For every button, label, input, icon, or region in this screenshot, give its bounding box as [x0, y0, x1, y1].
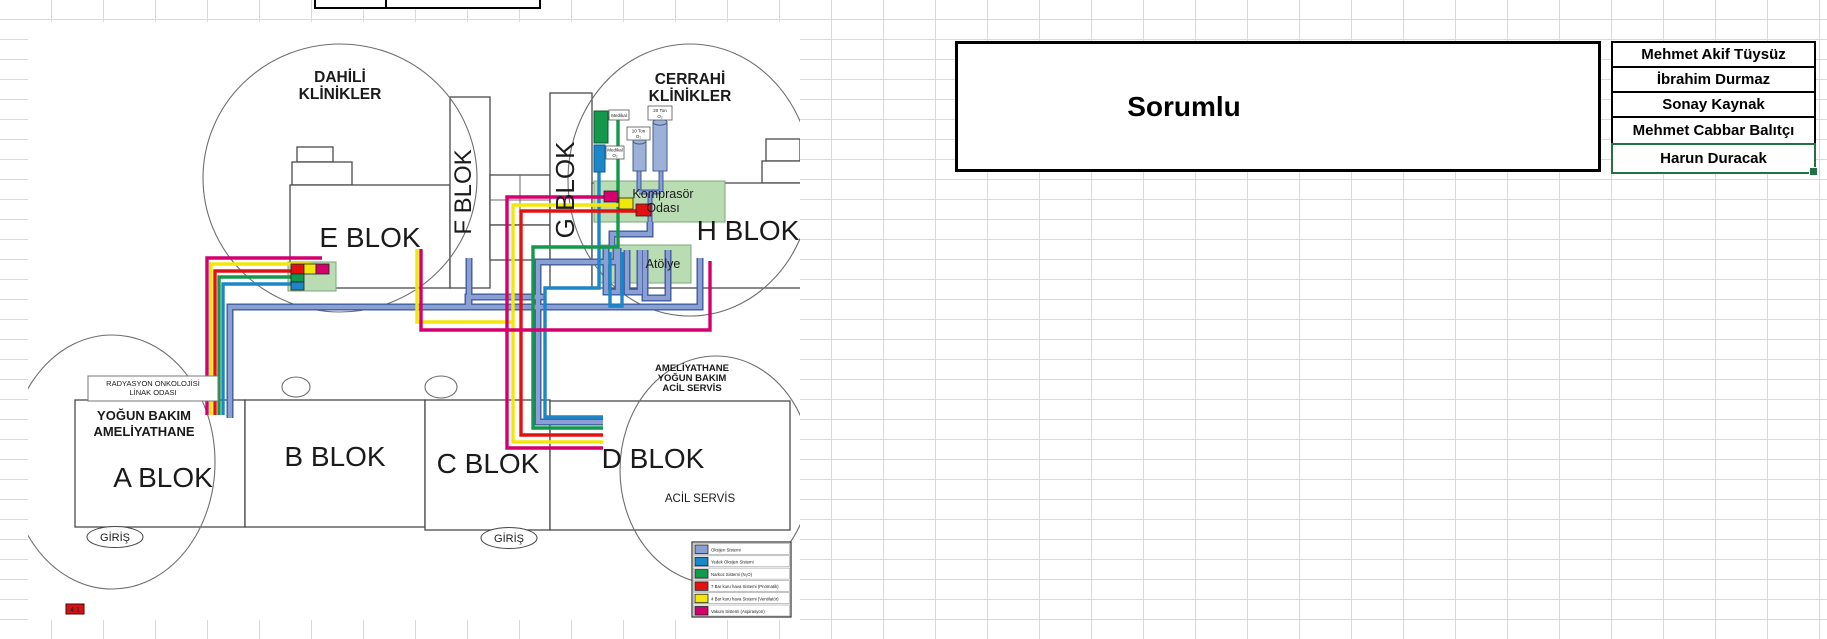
legend-label-vakum: Vakum Sistemi (Aspirasyon): [711, 609, 765, 614]
sorumlu-names-table: Mehmet Akif Tüysüz İbrahim Durmaz Sonay …: [1611, 41, 1816, 174]
name-cell[interactable]: Mehmet Cabbar Balıtçı: [1611, 116, 1816, 145]
name-text: Mehmet Akif Tüysüz: [1641, 46, 1785, 63]
f-blok-label: F BLOK: [450, 149, 477, 234]
tank2-label-1: 20 Ton: [653, 108, 667, 113]
gas-equipment: Medikal Medikal O₂ 10 Ton O₂ 20 Ton O₂: [594, 106, 672, 172]
dahili-label-2: KLİNİKLER: [299, 86, 382, 103]
h-blok-roof2: [762, 161, 800, 183]
selection-fill-handle[interactable]: [1809, 167, 1818, 176]
vakum-outlet: [316, 264, 329, 274]
legend-swatch-4bar: [695, 594, 708, 603]
yedek-bar: [594, 145, 605, 172]
yogun-label-2: AMELİYATHANE: [93, 424, 194, 439]
narkoz-bar-label: Medikal: [611, 113, 627, 118]
tree-oval: [282, 377, 310, 397]
g-blok-label: G BLOK: [550, 141, 580, 238]
e-blok-roof2: [292, 162, 352, 185]
4bar-outlet: [619, 198, 633, 209]
legend-swatch-7bar: [695, 582, 708, 591]
top-partial-cells: [314, 0, 541, 9]
oksijen-outlet: [291, 282, 304, 290]
legend-swatch-yedek: [695, 557, 708, 566]
sorumlu-title: Sorumlu: [958, 44, 1410, 169]
top-cell[interactable]: [387, 0, 541, 9]
oxygen-tank-10ton: [633, 141, 646, 171]
radyasyon-label-1: RADYASYON ONKOLOJİSİ: [106, 379, 200, 388]
legend: Oksijen Sistemi Yedek Oksijen Sistemi Na…: [692, 542, 791, 617]
name-cell-selected[interactable]: Harun Duracak: [1611, 143, 1816, 174]
cerrahi-label-2: KLİNİKLER: [649, 88, 732, 105]
name-text: Sonay Kaynak: [1662, 96, 1765, 113]
site-map-canvas[interactable]: Medikal Medikal O₂ 10 Ton O₂ 20 Ton O₂ R…: [28, 22, 800, 620]
h-blok-roof1: [766, 139, 800, 161]
top-cell[interactable]: [314, 0, 387, 9]
tank1-label-1: 10 Ton: [632, 129, 646, 134]
name-cell[interactable]: Mehmet Akif Tüysüz: [1611, 41, 1816, 68]
yedek-bar-label-2: O₂: [612, 153, 618, 158]
legend-swatch-narkoz: [695, 570, 708, 579]
komprasor-label-2: Odası: [646, 201, 679, 215]
amel-label-3: ACİL SERVİS: [662, 383, 721, 394]
acil-servis-label: ACİL SERVİS: [665, 492, 736, 505]
komprasor-label-1: Komprasör: [632, 187, 693, 201]
giris-label-west: GİRİŞ: [100, 531, 130, 544]
yogun-label-1: YOĞUN BAKIM: [97, 408, 191, 423]
narkoz-bar: [594, 111, 608, 143]
tree-oval: [425, 376, 457, 398]
yogun-bakim-labels: YOĞUN BAKIM AMELİYATHANE: [93, 408, 194, 439]
radyasyon-label-2: LİNAK ODASI: [129, 388, 176, 397]
legend-label-4bar: 4 Bar kuru hava Sistemi (Ventilatör): [711, 597, 779, 602]
h-blok-label: H BLOK: [697, 215, 800, 246]
yedek-bar-label-1: Medikal: [607, 148, 623, 153]
name-text: İbrahim Durmaz: [1657, 71, 1770, 88]
legend-label-yedek: Yedek Oksijen Sistemi: [711, 560, 754, 565]
4bar-outlet: [304, 264, 316, 274]
amel-zone-labels: AMELİYATHANE YOĞUN BAKIM ACİL SERVİS: [655, 363, 729, 394]
legend-label-oksijen: Oksijen Sistemi: [711, 547, 741, 552]
narkoz-outlet: [291, 274, 304, 282]
sorumlu-box[interactable]: Sorumlu: [955, 41, 1601, 172]
zone-labels: DAHİLİ KLİNİKLER CERRAHİ KLİNİKLER: [299, 69, 732, 105]
d-blok-label: D BLOK: [602, 443, 705, 474]
e-blok-roof1: [297, 147, 333, 162]
name-text: Mehmet Cabbar Balıtçı: [1633, 122, 1795, 139]
oxygen-tank-20ton: [653, 122, 667, 171]
7bar-outlet: [291, 264, 304, 274]
b-blok-label: B BLOK: [284, 441, 385, 472]
atolye-label: Atölye: [646, 257, 681, 271]
name-cell[interactable]: İbrahim Durmaz: [1611, 66, 1816, 93]
legend-label-narkoz: Narkoz Sistemi (N₂O): [711, 572, 753, 577]
vakum-outlet: [604, 191, 618, 202]
tank2-label-2: O₂: [657, 114, 663, 119]
a-blok-label: A BLOK: [113, 462, 213, 493]
legend-swatch-vakum: [695, 607, 708, 616]
red-note-text: 4.1: [70, 607, 80, 614]
c-blok-label: C BLOK: [437, 448, 540, 479]
name-cell[interactable]: Sonay Kaynak: [1611, 91, 1816, 118]
legend-label-7bar: 7 Bar kuru hava Sistemi (Pnömatik): [711, 584, 779, 589]
dahili-label-1: DAHİLİ: [314, 69, 366, 86]
e-blok-label: E BLOK: [319, 222, 420, 253]
site-map-drawing: Medikal Medikal O₂ 10 Ton O₂ 20 Ton O₂ R…: [28, 22, 800, 620]
giris-label-center: GİRİŞ: [494, 532, 524, 545]
legend-swatch-oksijen: [695, 545, 708, 554]
tank1-label-2: O₂: [636, 134, 642, 139]
name-text: Harun Duracak: [1660, 150, 1767, 167]
cerrahi-label-1: CERRAHİ: [655, 71, 726, 88]
